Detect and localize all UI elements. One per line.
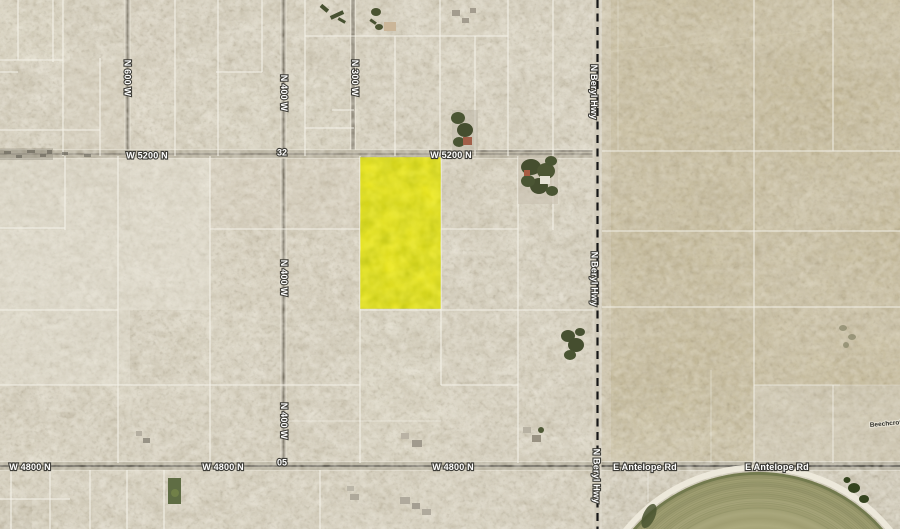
svg-text:N 400 W: N 400 W xyxy=(279,260,289,297)
svg-text:N 400 W: N 400 W xyxy=(279,75,289,112)
svg-text:W 4800 N: W 4800 N xyxy=(202,462,244,472)
svg-text:N Beryl Hwy: N Beryl Hwy xyxy=(590,252,600,307)
svg-text:E Antelope Rd: E Antelope Rd xyxy=(613,462,677,472)
svg-text:N 600 W: N 600 W xyxy=(123,60,133,97)
svg-text:N Beryl Hwy: N Beryl Hwy xyxy=(589,65,599,120)
svg-text:N 400 W: N 400 W xyxy=(279,403,289,440)
svg-text:W 5200 N: W 5200 N xyxy=(126,151,168,161)
svg-text:W 4800 N: W 4800 N xyxy=(9,462,51,472)
svg-text:N 300 W: N 300 W xyxy=(350,60,360,97)
svg-text:05: 05 xyxy=(277,458,287,468)
svg-text:W 4800 N: W 4800 N xyxy=(432,462,474,472)
svg-text:N Beryl Hwy: N Beryl Hwy xyxy=(592,449,602,504)
svg-text:32: 32 xyxy=(277,148,287,158)
svg-text:E Antelope Rd: E Antelope Rd xyxy=(745,462,809,472)
svg-text:W 5200 N: W 5200 N xyxy=(430,150,472,160)
